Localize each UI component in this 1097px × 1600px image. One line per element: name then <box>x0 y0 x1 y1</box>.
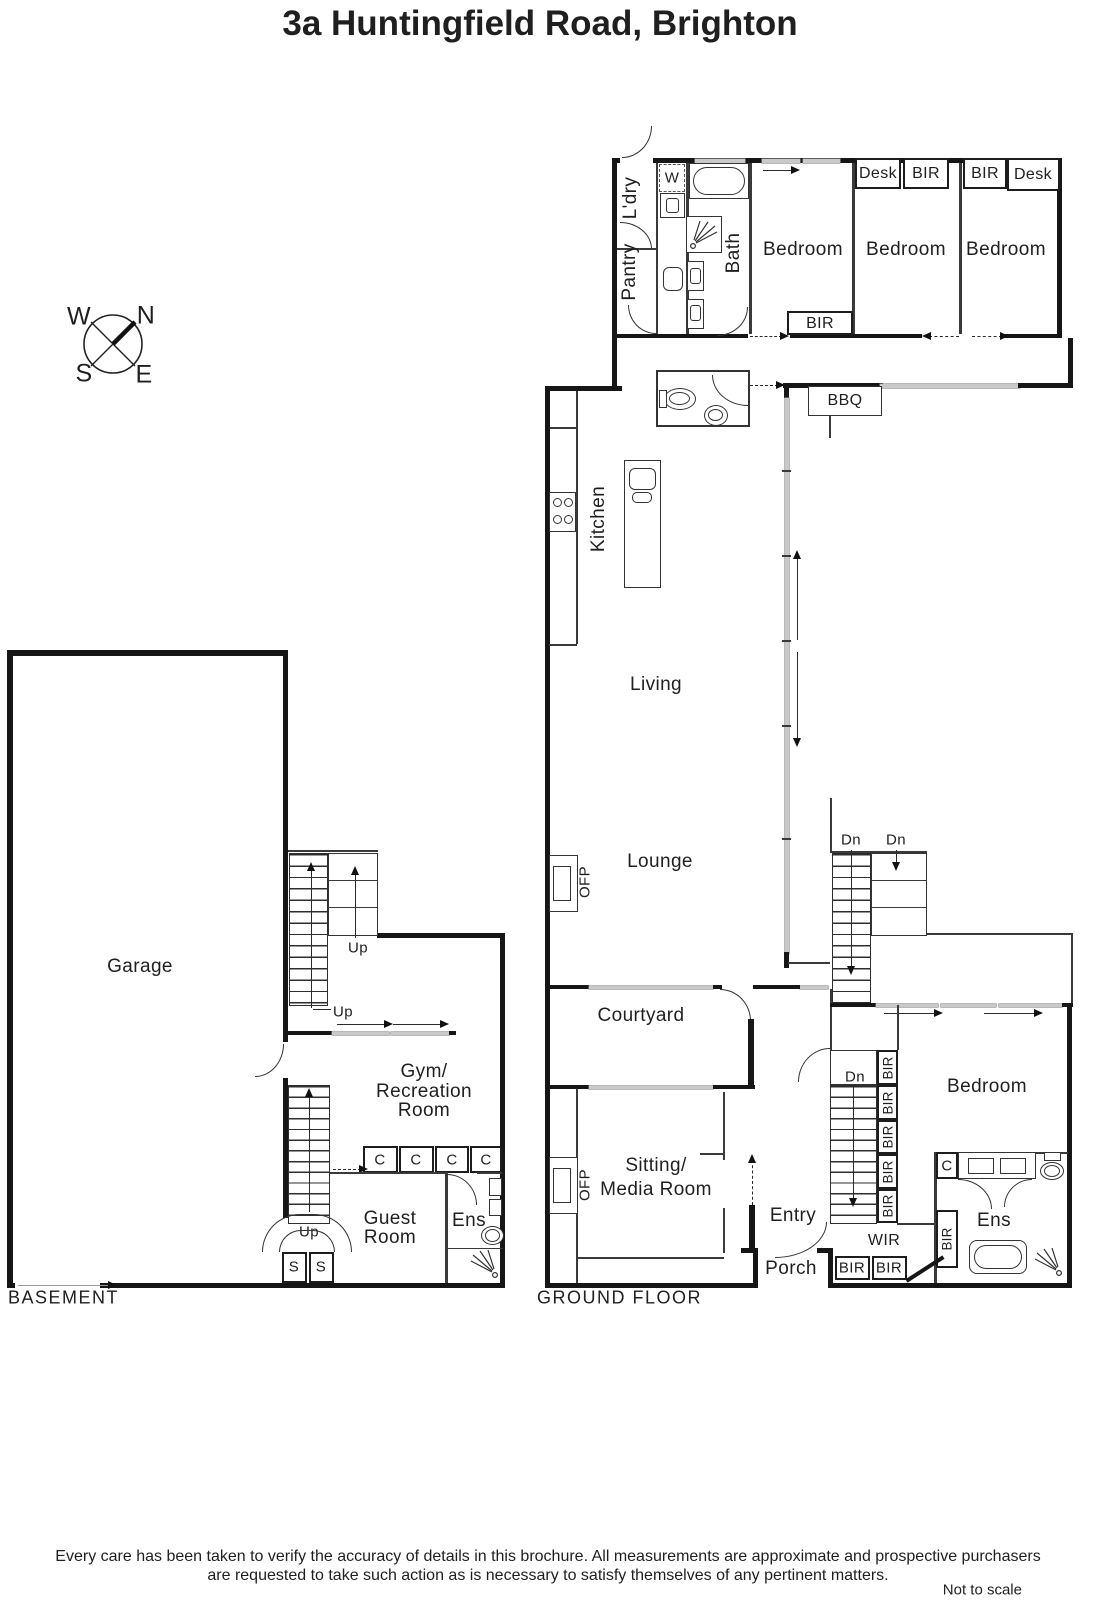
window <box>762 159 800 163</box>
up-label: Up <box>333 1004 353 1021</box>
basement-label: BASEMENT <box>8 1288 119 1309</box>
room-label-gym-1: Gym/ <box>401 1061 448 1083</box>
arrow <box>750 336 782 337</box>
cupboard-label: C <box>446 1152 457 1169</box>
wall <box>1071 933 1073 1003</box>
cooktop-icon <box>564 515 573 524</box>
shower-spray-icon <box>1032 1246 1064 1278</box>
dn-label: Dn <box>841 832 861 849</box>
window <box>880 384 1020 388</box>
arrow <box>1034 1009 1043 1017</box>
door-arc <box>1004 1179 1032 1207</box>
kitchen-bench <box>549 644 577 646</box>
room-label-sitting-2: Media Room <box>600 1179 712 1201</box>
fireplace-icon <box>553 866 571 901</box>
window <box>782 725 791 727</box>
window <box>589 986 713 989</box>
wall <box>749 163 752 334</box>
stair-landing <box>328 907 378 908</box>
door-arc <box>447 1174 477 1205</box>
room-label-kitchen: Kitchen <box>588 486 610 552</box>
window <box>941 1004 996 1007</box>
arrow <box>748 1154 756 1163</box>
compass-east-label: E <box>135 361 152 390</box>
cupboard-label: C <box>374 1152 385 1169</box>
washer-label: W <box>665 170 680 187</box>
wall <box>612 338 617 388</box>
room-label-garage: Garage <box>107 956 173 978</box>
arrow <box>797 652 798 740</box>
arrow <box>797 556 798 640</box>
bir-label: BIR <box>881 1056 896 1079</box>
arrow <box>793 738 801 747</box>
window <box>782 470 791 472</box>
window <box>332 1032 389 1035</box>
basin-icon <box>1000 1158 1026 1174</box>
bir-label: BIR <box>806 315 834 333</box>
wall <box>100 1283 505 1288</box>
door-arc <box>255 1044 284 1077</box>
arrow <box>309 1094 310 1212</box>
dn-label: Dn <box>886 832 906 849</box>
shower-spray-icon <box>688 219 720 251</box>
bir-label: BIR <box>839 1260 865 1277</box>
toilet-icon <box>690 305 701 321</box>
bir-label: BIR <box>881 1125 896 1148</box>
window <box>782 640 791 642</box>
wall <box>576 1257 724 1259</box>
arrow <box>851 850 852 968</box>
compass-north-label: N <box>137 302 155 331</box>
basin-icon <box>708 409 723 421</box>
toilet-icon <box>659 390 667 408</box>
arrow <box>355 872 356 938</box>
wall <box>897 1223 934 1225</box>
wall <box>784 383 789 398</box>
room-label-bath: Bath <box>723 233 745 274</box>
cooktop-icon <box>564 498 573 507</box>
wall <box>832 1283 1068 1288</box>
sink-icon <box>629 468 656 490</box>
arrow <box>337 1024 386 1025</box>
window <box>876 1004 938 1007</box>
arrow <box>333 1169 361 1170</box>
arrow <box>18 1285 110 1286</box>
window <box>391 1032 449 1035</box>
room-label-gym-3: Room <box>398 1100 450 1122</box>
wall <box>545 1085 589 1089</box>
ofp-label: OFP <box>577 866 594 898</box>
wall <box>723 1208 725 1253</box>
wall <box>748 1019 754 1087</box>
wall <box>753 1248 758 1288</box>
door-arc <box>628 305 656 334</box>
compass-west-label: W <box>67 303 91 332</box>
page-title: 3a Huntingfield Road, Brighton <box>282 4 797 44</box>
stair-landing <box>871 880 927 881</box>
wall <box>959 163 962 334</box>
arrow <box>934 1009 943 1017</box>
room-label-pantry: Pantry <box>619 243 641 300</box>
window <box>803 159 840 163</box>
door-arc <box>958 1179 992 1209</box>
bathtub-icon <box>974 1245 1022 1269</box>
wall <box>1003 334 1062 338</box>
wall <box>330 1172 447 1174</box>
cooktop-icon <box>553 498 562 507</box>
vanity-icon <box>489 1178 502 1196</box>
cooktop-icon <box>549 492 576 532</box>
room-label-wir: WIR <box>868 1232 900 1250</box>
desk-label: Desk <box>859 165 897 183</box>
bir-label: BIR <box>971 165 999 183</box>
wall <box>612 334 748 338</box>
wall <box>905 1255 944 1282</box>
washing-machine-icon <box>666 198 679 213</box>
stair-landing <box>871 907 927 908</box>
basin-icon <box>968 1158 994 1174</box>
wall <box>784 952 789 968</box>
door-arc <box>622 126 652 158</box>
room-label-bedroom-2: Bedroom <box>866 239 946 261</box>
room-label-bedroom-3: Bedroom <box>966 239 1046 261</box>
arrow <box>750 385 778 386</box>
laundry-sink-icon <box>663 267 683 291</box>
wall <box>788 962 830 964</box>
arrow <box>311 868 312 1008</box>
arrow <box>849 1198 857 1207</box>
bir-label: BIR <box>881 1160 896 1183</box>
toilet-icon <box>690 268 701 284</box>
stair-landing <box>328 880 378 881</box>
room-label-ldry: L'dry <box>620 177 642 220</box>
wall <box>700 1153 724 1155</box>
wall <box>830 798 832 853</box>
arrow <box>351 866 359 875</box>
disclaimer-line-2: are requested to take such action as is … <box>207 1567 888 1585</box>
window <box>800 986 828 989</box>
toilet-icon <box>485 1229 500 1242</box>
wall <box>723 1092 725 1160</box>
wall <box>1067 1003 1072 1288</box>
wall <box>830 1003 876 1007</box>
staircase <box>289 853 328 1006</box>
arrow <box>791 166 800 174</box>
disclaimer-line-1: Every care has been taken to verify the … <box>55 1548 1040 1566</box>
desk-label: Desk <box>1014 166 1052 184</box>
ofp-label: OFP <box>577 1169 594 1201</box>
arrow <box>763 170 793 171</box>
wall <box>283 650 288 1042</box>
bathtub-icon <box>693 167 745 195</box>
arrow <box>780 332 789 340</box>
cooktop-icon <box>553 515 562 524</box>
wall <box>545 985 589 989</box>
cupboard-label: C <box>410 1152 421 1169</box>
room-label-bedroom-4: Bedroom <box>947 1076 1027 1098</box>
not-to-scale-label: Not to scale <box>943 1582 1022 1599</box>
window <box>782 555 791 557</box>
room-label-lounge: Lounge <box>627 851 693 873</box>
wall <box>7 650 13 1288</box>
door-arc <box>720 989 751 1021</box>
wall <box>830 989 832 1050</box>
wall <box>753 985 800 989</box>
window <box>785 398 789 954</box>
bir-label: BIR <box>881 1194 896 1217</box>
compass-south-label: S <box>75 360 92 389</box>
room-label-guest-2: Room <box>364 1227 416 1249</box>
dn-label: Dn <box>845 1069 865 1086</box>
kitchen-bench <box>576 391 578 644</box>
wall <box>897 1005 899 1050</box>
wall <box>656 163 658 334</box>
cupboard-label: C <box>480 1152 491 1169</box>
window <box>589 1086 713 1089</box>
toilet-icon <box>1044 1165 1060 1177</box>
arrow <box>305 1088 313 1097</box>
wall <box>1018 383 1073 388</box>
door-arc <box>717 307 748 336</box>
bir-label: BIR <box>876 1260 902 1277</box>
room-label-living: Living <box>630 674 682 696</box>
arrow <box>847 966 855 975</box>
toilet-icon <box>1044 1152 1061 1161</box>
arrow <box>884 1013 936 1014</box>
wall <box>7 650 288 656</box>
window <box>782 838 791 840</box>
arrow <box>1000 332 1009 340</box>
toilet-icon <box>669 392 690 405</box>
arrow <box>853 1085 854 1200</box>
room-label-bedroom-1: Bedroom <box>763 239 843 261</box>
room-label-ens-gf: Ens <box>977 1210 1011 1232</box>
store-label: S <box>289 1259 299 1276</box>
room-label-sitting-1: Sitting/ <box>625 1155 686 1177</box>
vanity-icon <box>489 1199 502 1216</box>
arrow <box>384 1020 393 1028</box>
arrow <box>752 1160 753 1205</box>
bir-label: BIR <box>940 1227 955 1250</box>
up-label: Up <box>348 940 368 957</box>
shower-spray-icon <box>468 1248 500 1280</box>
sink-icon <box>632 492 652 503</box>
wall <box>477 1172 502 1174</box>
bir-label: BIR <box>881 1091 896 1114</box>
arrow <box>793 550 801 559</box>
wall <box>377 933 505 938</box>
arrow <box>984 1013 1036 1014</box>
wall <box>288 850 378 852</box>
arrow <box>440 1020 449 1028</box>
door-arc <box>798 1048 830 1082</box>
store-label: S <box>316 1259 326 1276</box>
wall <box>1068 338 1073 388</box>
fireplace-icon <box>553 1168 571 1203</box>
arrow <box>922 332 931 340</box>
cupboard-label: C <box>941 1158 952 1175</box>
arrow <box>892 862 900 871</box>
wall <box>828 1248 833 1288</box>
room-label-porch: Porch <box>765 1258 817 1280</box>
ground-floor-label: GROUND FLOOR <box>537 1288 702 1309</box>
room-label-ens-basement: Ens <box>452 1210 486 1232</box>
wall <box>829 416 831 438</box>
arrow <box>307 862 315 871</box>
bbq-label: BBQ <box>828 392 863 410</box>
room-label-courtyard: Courtyard <box>597 1005 684 1027</box>
wall <box>545 386 622 391</box>
window <box>999 1004 1062 1007</box>
arrow <box>972 336 1002 337</box>
bir-label: BIR <box>912 165 940 183</box>
wall <box>749 1205 755 1253</box>
kitchen-bench <box>550 427 577 429</box>
wall <box>449 1031 456 1035</box>
arrow <box>313 1009 331 1010</box>
wall <box>713 1085 755 1089</box>
wall <box>927 933 1073 935</box>
wall <box>283 1031 332 1035</box>
arrow <box>929 336 959 337</box>
floorplan-canvas: 3a Huntingfield Road, Brighton W N S E W <box>0 0 1097 1600</box>
arrow <box>393 1024 442 1025</box>
